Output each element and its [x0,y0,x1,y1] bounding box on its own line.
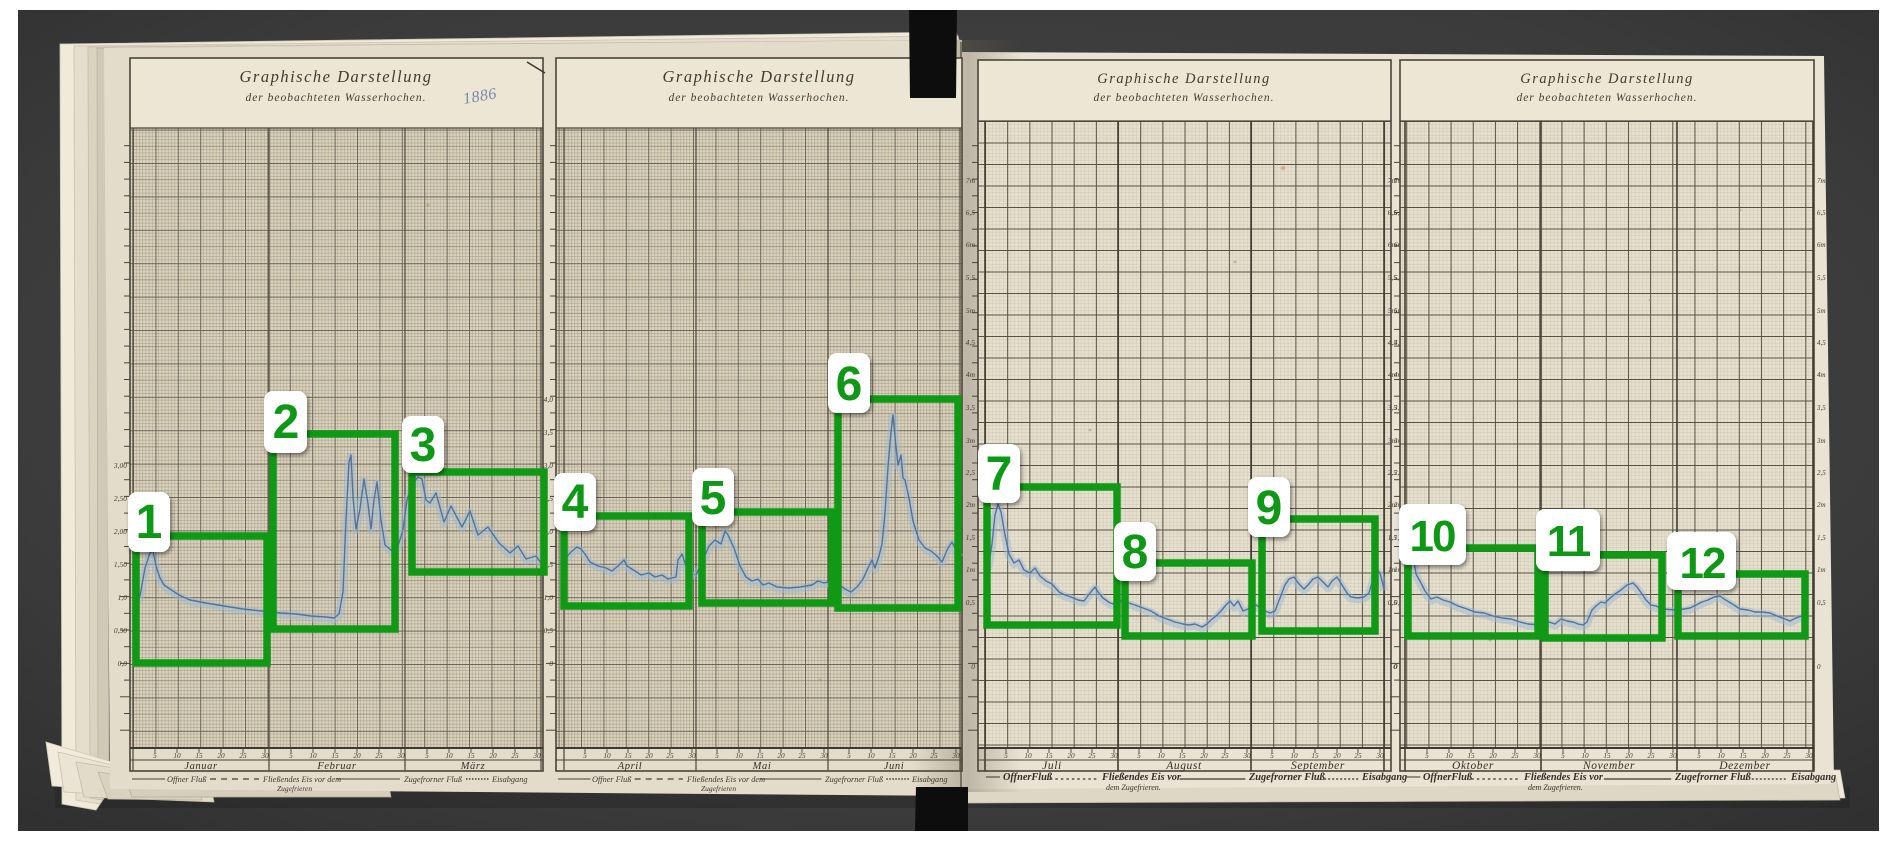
svg-text:der beobachteten Wasserhoche: der beobachteten Wasserhochen. [1093,92,1274,104]
svg-text:1m: 1m [1817,566,1826,574]
svg-text:10: 10 [735,751,743,760]
svg-text:3,5: 3,5 [1816,404,1826,412]
svg-text:0,5: 0,5 [966,598,976,607]
svg-text:0,5: 0,5 [1388,598,1398,607]
svg-text:30: 30 [396,751,405,760]
svg-text:6m: 6m [966,240,976,249]
svg-text:25: 25 [930,751,938,760]
svg-text:30: 30 [1532,751,1541,760]
svg-text:30: 30 [532,751,541,760]
svg-text:30: 30 [1804,751,1813,760]
svg-text:Fließendes Eis vor: Fließendes Eis vor [1523,772,1604,783]
svg-text:1m: 1m [966,565,976,574]
svg-text:dem Zugefrieren.: dem Zugefrieren. [1106,783,1161,792]
svg-text:20: 20 [1200,751,1208,760]
svg-text:1,50: 1,50 [114,560,127,569]
svg-text:0: 0 [1817,663,1821,671]
svg-text:25: 25 [1511,751,1519,760]
svg-text:7m: 7m [1817,177,1826,185]
svg-text:20: 20 [1067,751,1075,760]
svg-text:5: 5 [289,751,293,760]
svg-text:2m: 2m [1817,501,1826,509]
svg-text:10: 10 [309,751,317,760]
svg-text:20: 20 [489,751,497,760]
svg-text:Zugefrorner Fluß: Zugefrorner Fluß [1248,772,1326,783]
svg-text:2,50: 2,50 [114,494,127,503]
svg-text:5: 5 [1270,751,1274,760]
svg-text:3,00: 3,00 [113,461,127,470]
svg-text:Eisabgang: Eisabgang [491,775,528,784]
svg-text:1,0: 1,0 [118,593,128,602]
svg-text:10: 10 [1410,512,1455,561]
svg-text:20: 20 [217,751,225,760]
svg-text:OffnerFluß: OffnerFluß [1423,772,1473,783]
svg-text:15: 15 [888,751,896,760]
svg-text:Fließendes Eis vor: Fließendes Eis vor [1101,772,1182,783]
svg-text:4,5: 4,5 [1388,338,1398,347]
svg-text:Zugefrorner Fluß: Zugefrorner Fluß [825,775,884,784]
svg-text:25: 25 [239,751,247,760]
svg-text:25: 25 [375,751,383,760]
svg-text:0,50: 0,50 [114,626,127,635]
svg-text:8: 8 [1122,526,1149,579]
svg-text:10: 10 [1445,751,1453,760]
svg-text:5: 5 [1137,751,1141,760]
svg-text:2,00: 2,00 [114,527,127,536]
svg-text:Juni: Juni [884,761,904,772]
svg-text:Dezember: Dezember [1718,760,1770,772]
svg-text:5: 5 [1697,751,1701,760]
svg-text:der beobachteten Wasserhoche: der beobachteten Wasserhochen. [668,92,849,104]
svg-text:dem Zugefrieren.: dem Zugefrieren. [1528,783,1583,792]
svg-text:2m: 2m [1388,500,1398,509]
svg-text:10: 10 [1157,751,1165,760]
svg-text:3,5: 3,5 [965,403,976,412]
svg-text:10: 10 [867,751,875,760]
svg-text:25: 25 [1647,751,1655,760]
svg-text:Zugefrorner Fluß: Zugefrorner Fluß [1674,772,1752,783]
svg-text:1,5: 1,5 [966,533,976,542]
svg-text:August: August [1165,760,1202,772]
svg-text:der beobachteten Wasserhoche: der beobachteten Wasserhochen. [245,92,426,104]
svg-text:11: 11 [1547,517,1591,566]
svg-text:Eisabgang: Eisabgang [1790,772,1836,783]
svg-text:4,5: 4,5 [1817,339,1826,347]
svg-text:April: April [617,761,643,772]
svg-text:12: 12 [1680,539,1725,588]
svg-text:November: November [1582,760,1635,772]
svg-text:10: 10 [1717,751,1725,760]
svg-text:März: März [460,761,486,772]
svg-text:2,5: 2,5 [1817,469,1826,477]
svg-text:Graphische Darstellung: Graphische Darstellung [1520,71,1694,87]
svg-text:5m: 5m [1817,307,1826,315]
svg-text:30: 30 [1668,751,1677,760]
svg-text:9: 9 [1256,482,1283,535]
svg-text:5: 5 [583,751,587,760]
svg-text:20: 20 [1333,751,1341,760]
svg-text:5,5: 5,5 [1817,274,1826,282]
svg-text:Fließendes Eis vor dem: Fließendes Eis vor dem [686,775,765,784]
svg-text:6,5: 6,5 [1817,209,1826,217]
svg-text:25: 25 [511,751,519,760]
svg-text:25: 25 [1783,751,1791,760]
svg-text:2: 2 [273,396,300,449]
svg-text:25: 25 [1088,751,1096,760]
svg-text:7: 7 [986,448,1013,501]
svg-text:20: 20 [645,751,653,760]
svg-text:15: 15 [1603,751,1611,760]
svg-text:0,5: 0,5 [544,626,554,635]
svg-text:Zugefrieren: Zugefrieren [277,784,312,793]
svg-text:2,5: 2,5 [966,468,976,477]
svg-text:10: 10 [1024,751,1032,760]
svg-text:20: 20 [1489,751,1497,760]
svg-text:2m: 2m [966,500,976,509]
svg-text:10: 10 [603,751,611,760]
svg-text:7m: 7m [1388,176,1398,185]
svg-text:15: 15 [756,751,764,760]
svg-text:3: 3 [410,419,437,472]
svg-text:1,0: 1,0 [544,593,554,602]
svg-text:15: 15 [1311,751,1319,760]
svg-text:10: 10 [445,751,453,760]
svg-text:1: 1 [136,496,163,549]
svg-text:15: 15 [1178,751,1186,760]
svg-text:Offner Fluß: Offner Fluß [167,775,207,784]
svg-text:30: 30 [260,751,269,760]
svg-text:3,5: 3,5 [1387,403,1398,412]
svg-text:30: 30 [1109,751,1118,760]
svg-text:4,0: 4,0 [544,395,554,404]
svg-text:20: 20 [909,751,917,760]
svg-text:5: 5 [847,751,851,760]
svg-text:20: 20 [1625,751,1633,760]
svg-text:15: 15 [331,751,339,760]
svg-text:30: 30 [951,751,960,760]
svg-text:OffnerFluß: OffnerFluß [1003,772,1053,783]
svg-text:Oktober: Oktober [1452,760,1494,772]
svg-text:5,5: 5,5 [966,273,976,282]
svg-text:der beobachteten Wasserhoche: der beobachteten Wasserhochen. [1516,92,1697,104]
svg-text:5,5: 5,5 [1388,273,1398,282]
svg-text:30: 30 [1242,751,1251,760]
svg-text:15: 15 [467,751,475,760]
svg-text:20: 20 [353,751,361,760]
svg-text:0: 0 [1393,662,1397,671]
svg-text:Mai: Mai [752,761,772,772]
svg-text:0: 0 [971,662,975,671]
svg-text:1m: 1m [1388,565,1398,574]
svg-text:20: 20 [777,751,785,760]
svg-text:5: 5 [700,472,727,525]
svg-text:5: 5 [1561,751,1565,760]
svg-text:1,5: 1,5 [1388,533,1398,542]
svg-text:5m: 5m [966,306,976,315]
svg-text:September: September [1291,760,1345,772]
svg-text:5: 5 [425,751,429,760]
svg-text:15: 15 [624,751,632,760]
svg-text:Fließendes Eis vor dem: Fließendes Eis vor dem [262,775,341,784]
svg-text:3m: 3m [1387,436,1398,445]
svg-text:Eisabgang: Eisabgang [911,775,948,784]
svg-text:10: 10 [173,751,181,760]
svg-text:7m: 7m [966,176,976,185]
svg-text:3m: 3m [965,436,976,445]
svg-text:4m: 4m [1388,370,1398,379]
svg-text:Graphische Darstellung: Graphische Darstellung [663,67,856,86]
svg-text:5: 5 [1004,751,1008,760]
svg-text:1,5: 1,5 [1817,534,1826,542]
svg-text:5: 5 [153,751,157,760]
svg-text:Zugefrorner Fluß: Zugefrorner Fluß [404,775,463,784]
svg-text:6m: 6m [1388,240,1398,249]
svg-text:4,5: 4,5 [966,338,976,347]
svg-text:Eisabgang: Eisabgang [1361,772,1407,783]
svg-text:Graphische Darstellung: Graphische Darstellung [1097,71,1271,87]
svg-text:20: 20 [1761,751,1769,760]
svg-text:5m: 5m [1388,306,1398,315]
svg-text:3m: 3m [1816,437,1826,445]
svg-text:6,5: 6,5 [1388,208,1398,217]
svg-text:25: 25 [798,751,806,760]
svg-text:30: 30 [1375,751,1384,760]
svg-text:25: 25 [1221,751,1229,760]
svg-text:4m: 4m [1817,371,1826,379]
svg-text:4: 4 [562,476,589,529]
svg-text:3,5: 3,5 [543,428,554,437]
svg-text:Offner Fluß: Offner Fluß [592,775,632,784]
svg-text:Januar: Januar [184,761,218,772]
svg-text:0,0: 0,0 [118,659,128,668]
svg-text:15: 15 [1739,751,1747,760]
svg-text:5: 5 [1425,751,1429,760]
svg-text:Graphische Darstellung: Graphische Darstellung [240,67,433,86]
svg-text:2,5: 2,5 [1388,468,1398,477]
svg-text:6: 6 [836,358,863,411]
svg-text:30: 30 [687,751,696,760]
svg-text:5: 5 [715,751,719,760]
svg-text:6,5: 6,5 [966,208,976,217]
svg-text:15: 15 [1467,751,1475,760]
svg-text:10: 10 [1581,751,1589,760]
svg-text:30: 30 [819,751,828,760]
svg-text:0: 0 [549,659,553,668]
svg-text:10: 10 [1290,751,1298,760]
svg-text:0,5: 0,5 [1817,599,1826,607]
svg-text:25: 25 [1354,751,1362,760]
svg-text:25: 25 [666,751,674,760]
svg-text:15: 15 [1045,751,1053,760]
svg-text:Juli: Juli [1042,760,1062,772]
svg-text:6m: 6m [1817,241,1826,249]
svg-text:15: 15 [195,751,203,760]
svg-text:Februar: Februar [316,761,357,772]
svg-text:4m: 4m [966,370,976,379]
svg-text:Zugefrieren: Zugefrieren [701,784,736,793]
